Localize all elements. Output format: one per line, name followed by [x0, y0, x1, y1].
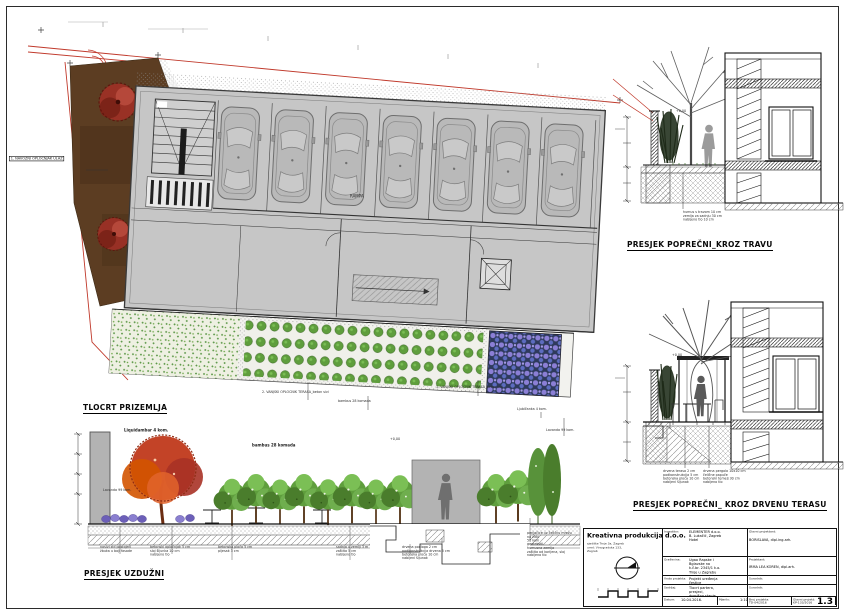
- grass-level-label: +0,00: [676, 110, 686, 114]
- person-silhouette: [702, 125, 715, 167]
- section-note: sadnja u zemlji 3 m zaštita 5 cm nabijen…: [336, 546, 368, 557]
- date-scale-cell: Datum: 10.04.2016. Mjerilo: 1:100: [663, 597, 747, 605]
- section-note: betonski opločnjak 5 cm sloj šljunka 10 …: [150, 546, 190, 557]
- investor-cell: Investitor: ELEMENTER d.o.o. B. Lukačić,…: [663, 529, 747, 557]
- section-lavender-label: Lavanda 99 kom.: [103, 489, 131, 493]
- building-value: Ugao Rapske i Bglavske na k.č.br. 2345/1…: [689, 558, 722, 575]
- plan-title: TLOCRT PRIZEMLJA: [83, 403, 167, 414]
- investor-label: Investitor:: [664, 530, 679, 534]
- associate-label-1: Suradnik:: [749, 577, 763, 581]
- investor-value: ELEMENTER d.o.o. B. Lukačić, Zagreb Hote…: [689, 530, 721, 543]
- planter-shrub: [657, 109, 683, 163]
- deck-level-label: +0,00: [672, 354, 682, 358]
- designer-label: Projektant:: [749, 558, 765, 562]
- section-note: penjačice uz čeličnu mrežu na zidu 50 ko…: [527, 532, 572, 558]
- company-address: sjedište Trnje 3a, Zagreb ured: Vinograd…: [587, 542, 625, 553]
- grass-note: humus s travom 10 cm zemlja za sadnju 30…: [683, 211, 722, 222]
- title-block-project-cells: Investitor: ELEMENTER d.o.o. B. Lukačić,…: [663, 529, 748, 606]
- building-cell: Građevina: Ugao Rapske i Bglavske na k.č…: [663, 557, 747, 576]
- longitudinal-section-drawing: [60, 422, 590, 570]
- scale-value: 1:100: [740, 598, 747, 602]
- drawing-sheet: TLOCRT PRIZEMLJA PRESJEK UZDUŽNI PRESJEK…: [0, 0, 845, 614]
- site-plan-drawing: [8, 8, 623, 428]
- date-label: Datum:: [664, 598, 675, 602]
- graphic-scale-bar: [596, 587, 660, 601]
- project-number-value: TD-04/2016: [749, 601, 767, 605]
- content-value: Tlocrt partera, presjeci, dvorišno stanj…: [689, 586, 722, 597]
- deck-note-left: drvena terasa 2 cm podkonstrukcija 5 cm …: [663, 470, 699, 485]
- section-note: nosivi zid postojeći žbuka u boji fasade: [100, 546, 132, 553]
- project-type-label: Vrsta projekta:: [664, 577, 686, 581]
- section-note: drvena podloga 2 cm podkonstrukcija drve…: [402, 546, 450, 561]
- lavender-clumps: [102, 514, 195, 522]
- ramp-label: RAMPA: [350, 195, 364, 199]
- title-block: Kreativna produkcija d.o.o. sjedište Trn…: [583, 528, 837, 607]
- scale-label: Mjerilo:: [719, 598, 730, 602]
- chief-designer-label: Glavni projektant:: [749, 530, 776, 534]
- dimension-line: [615, 364, 631, 463]
- designer-value: IRMA LEA KOREN, dipl.arh.: [749, 565, 795, 569]
- wall-climbers: [528, 444, 561, 524]
- elevator-shaft: [480, 258, 512, 290]
- flower-note-2: Lavanda 99 kom.: [546, 429, 574, 433]
- building-label: Građevina:: [664, 558, 681, 562]
- building-facade: [725, 53, 843, 210]
- cross-deck-title: PRESJEK POPREČNI_ KROZ DRVENU TERASU: [633, 500, 827, 511]
- slat-grid: [146, 177, 213, 210]
- foundation-detail: [370, 524, 530, 566]
- deck-ground: [643, 422, 731, 464]
- content-cell: Sadržaj: Tlocrt partera, presjeci, dvori…: [663, 585, 747, 597]
- red-boundary-leaders: [613, 79, 653, 121]
- title-block-company-cell: Kreativna produkcija d.o.o. sjedište Trn…: [584, 529, 663, 606]
- date-value: 10.04.2016.: [681, 598, 702, 602]
- project-type-value: Projekt uređenja čestice: [689, 577, 722, 585]
- project-type-cell: Vrsta projekta: Projekt uređenja čestice: [663, 576, 747, 585]
- associate-cell-1: Suradnik:: [748, 576, 836, 585]
- terrace-note-right: 1. VANJSKI OPLOČNIK TERASA_beton sivi: [436, 386, 503, 390]
- entry-paving-label: 1. NAVOZNI OPLOČNJAK ULAZ: [9, 156, 64, 161]
- bamboo-row: [214, 474, 419, 526]
- boundary-wall: [90, 432, 110, 524]
- associate-cell-2: Suradnik:: [748, 585, 836, 597]
- company-logo: [610, 555, 644, 581]
- section-bamboo-label: bambus 28 komada: [252, 444, 295, 448]
- planting-grid: [109, 309, 240, 380]
- building-facade: [731, 302, 843, 469]
- content-label: Sadržaj:: [664, 586, 676, 590]
- liquidambar-tree: [122, 435, 203, 524]
- number-sheet-cell: Broj projekta: TD-04/2016 Glavni projekt…: [748, 597, 836, 605]
- garage-ramp: [352, 275, 438, 305]
- bistro-tables: [203, 508, 331, 523]
- long-section-title: PRESJEK UZDUŽNI: [84, 569, 164, 580]
- section-note: betonska ploča 5 cm pijesak 3 cm: [218, 546, 252, 553]
- sheet-number-value: 1.3: [817, 597, 833, 605]
- cross-grass-title: PRESJEK POPREČNI_KROZ TRAVU: [627, 240, 773, 251]
- designer-cell: Projektant: IRMA LEA KOREN, dipl.arh.: [748, 557, 836, 576]
- chief-designer-value: BORISLAVA, dipl.ing.arh.: [749, 538, 791, 542]
- title-block-people-cells: Glavni projektant: BORISLAVA, dipl.ing.a…: [748, 529, 836, 606]
- building-plan: [109, 71, 606, 398]
- associate-label-2: Suradnik:: [749, 586, 763, 590]
- dimension-line: [74, 432, 82, 526]
- planter-shrub: [657, 364, 677, 420]
- staircase: [151, 99, 215, 176]
- terrace-note-left: 2. VANJSKI OPLOČNIK TERASA_beton sivi: [262, 391, 329, 395]
- cross-section-grass-drawing: [613, 33, 845, 245]
- liquidambar-label: Liquidambar 4 kom.: [124, 429, 168, 433]
- section-level-label: +0,00: [390, 438, 400, 442]
- dimension-line: [615, 115, 631, 203]
- deck-note-right: drvena pergola 10x10 cm čelične papuče b…: [703, 470, 746, 485]
- main-project-value: KP-133/2016: [793, 601, 812, 605]
- bamboo-note: bambus 28 komada: [338, 400, 371, 404]
- flower-note-1: Ljubičanka 4 kom.: [517, 408, 547, 412]
- chief-designer-cell: Glavni projektant: BORISLAVA, dipl.ing.a…: [748, 529, 836, 557]
